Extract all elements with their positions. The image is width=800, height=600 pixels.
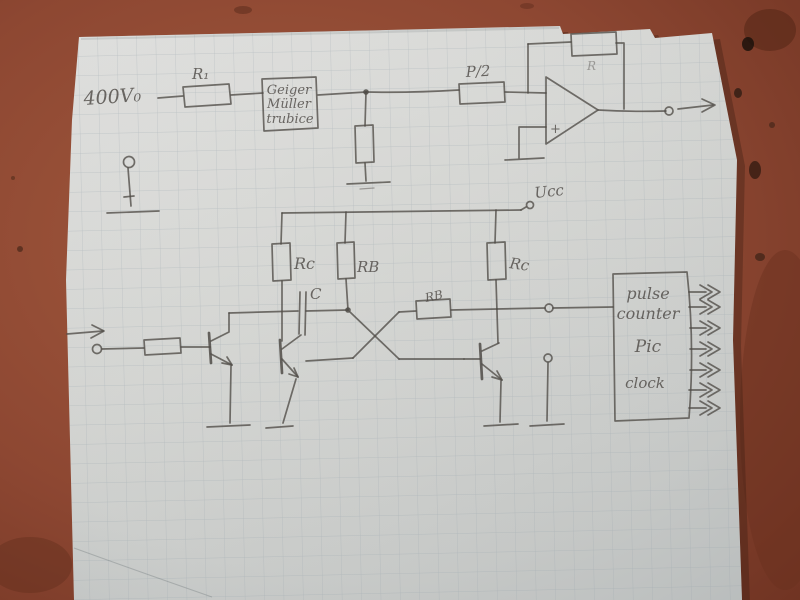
table-stain <box>742 37 754 51</box>
wire <box>495 210 496 243</box>
wire <box>547 363 548 421</box>
capacitor-plate <box>299 292 300 334</box>
wire <box>497 308 545 309</box>
capacitor-label: C <box>310 285 322 303</box>
ucc-label: Ucc <box>534 181 566 202</box>
table-stain <box>755 253 765 261</box>
geiger-box-line3: trubice <box>266 112 314 127</box>
resistor-rc-right-label: Rc <box>507 254 531 275</box>
table-stain <box>749 161 761 179</box>
wire <box>345 212 346 243</box>
wire <box>281 213 282 244</box>
wire <box>306 310 348 311</box>
hv-supply-label: 400V₀ <box>82 84 142 110</box>
resistor-rb-mid-label: RB <box>356 258 379 276</box>
schematic-photo: 400V₀ R₁ Geiger Müller trubice <box>0 0 800 600</box>
wire <box>553 307 613 308</box>
table-stain <box>11 176 15 180</box>
wire <box>399 311 416 312</box>
counter-box-line1: pulse <box>626 284 669 303</box>
wire <box>365 92 366 126</box>
table-stain <box>769 122 775 128</box>
wire <box>500 381 501 422</box>
geiger-box-line2: Müller <box>266 97 312 112</box>
counter-box-line4: clock <box>625 374 665 392</box>
table-stain <box>234 6 252 14</box>
table-stain <box>17 246 23 252</box>
opamp-plus-input-label: + <box>550 122 561 137</box>
tick <box>124 196 134 197</box>
counter-box-line2: counter <box>617 304 681 323</box>
wire <box>451 309 497 310</box>
geiger-box-line1: Geiger <box>267 83 312 98</box>
resistor-p2-label: P/2 <box>464 62 491 81</box>
counter-box-line3: Pic <box>634 337 662 357</box>
capacitor-plate <box>305 292 306 335</box>
feedback-resistor-label: R <box>586 59 596 73</box>
resistor-rc-left-label: Rc <box>293 254 315 273</box>
wire <box>102 348 144 349</box>
table-stain <box>734 88 742 98</box>
wire <box>230 366 231 423</box>
table-stain <box>520 3 534 9</box>
wire <box>505 92 546 93</box>
geiger-tube-box: Geiger Müller trubice <box>262 77 318 131</box>
wire <box>365 163 366 181</box>
resistor-r1-label: R₁ <box>191 65 209 83</box>
photo-scene: 400V₀ R₁ Geiger Müller trubice <box>0 0 800 600</box>
